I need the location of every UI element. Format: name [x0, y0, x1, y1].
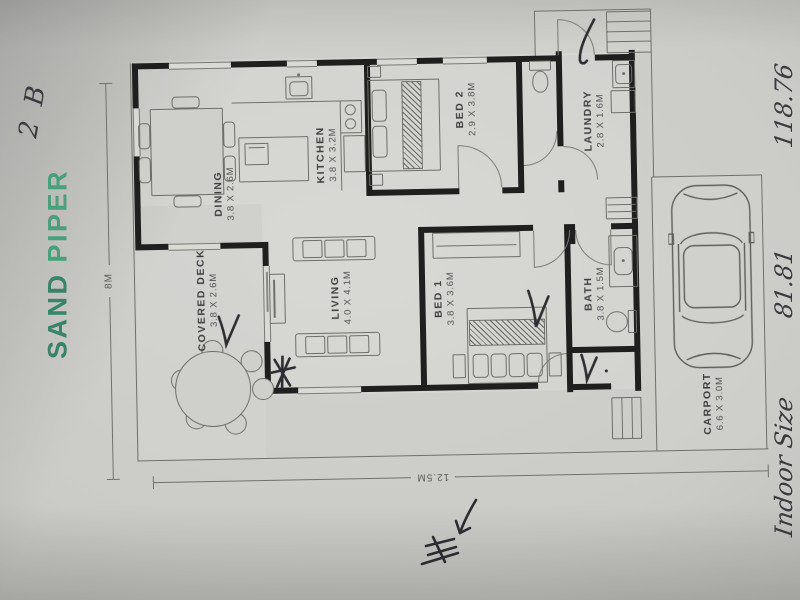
- pen-checkmark-bed1: [524, 286, 551, 332]
- bath-fixtures: [86, 0, 778, 9]
- tv-unit: [269, 274, 286, 324]
- doors: [86, 0, 778, 9]
- window: [298, 386, 361, 394]
- walls: [86, 0, 778, 9]
- window: [443, 57, 487, 65]
- plan-title-word1: SAND: [43, 273, 73, 360]
- washing-machine-space: [610, 90, 635, 113]
- deck-table: [86, 0, 778, 9]
- dimension-width: 12.5M: [86, 0, 778, 9]
- room-label-laundry: LAUNDRY2.8 X 1.6M: [581, 90, 606, 152]
- bath-toilet: [628, 310, 637, 333]
- fridge: [343, 135, 366, 172]
- living-furniture: [86, 0, 778, 9]
- plan-title-word2: PIPER: [43, 169, 73, 263]
- bed2-bed: [86, 0, 778, 9]
- room-label-living: LIVING4.0 X 4.1M: [329, 270, 354, 324]
- room-label-bath: BATH3.8 X 1.5M: [582, 266, 607, 320]
- wc-toilet: [86, 0, 778, 9]
- plan-title: SAND PIPER: [43, 169, 74, 359]
- front-steps: [611, 397, 642, 440]
- window: [377, 58, 417, 66]
- car-top-view: [667, 181, 757, 373]
- entry-porch: [86, 0, 778, 9]
- north-arrow-sketch: [416, 494, 492, 582]
- width-dimension-label: 12.5M: [416, 471, 449, 483]
- windows: [86, 0, 778, 9]
- window: [169, 62, 231, 70]
- laundry-fixtures: [86, 0, 778, 9]
- room-label-kitchen: KITCHEN3.8 X 3.2M: [314, 126, 339, 184]
- kitchen-fixtures: [86, 0, 778, 9]
- dining-table: [86, 0, 778, 9]
- dimension-height: 8M: [86, 0, 778, 9]
- room-label-bed1: BED 13.8 X 3.6M: [432, 271, 457, 325]
- room-label-bed2: BED 22.9 X 3.8M: [453, 82, 478, 136]
- height-dimension-label: 8M: [103, 273, 114, 289]
- floor-plan: DINING3.8 X 2.6M KITCHEN3.8 X 3.2M BED 2…: [86, 0, 787, 501]
- window: [287, 60, 317, 68]
- bed1-furniture: [86, 0, 778, 9]
- pen-checkmark-entry: [577, 352, 600, 386]
- pen-checkmark-porch: [572, 17, 601, 70]
- entry-dot: [605, 369, 608, 372]
- room-label-carport: CARPORT6.6 X 3.0M: [701, 372, 726, 435]
- room-label-dining: DINING3.8 X 2.6M: [212, 167, 237, 221]
- handwritten-bedroom-code: 2 B: [13, 80, 52, 140]
- pen-checkmark-deck: [216, 310, 243, 354]
- pen-star-living: [268, 355, 297, 390]
- photographed-floorplan-page: { "brand": { "word1": "SAND", "word2": "…: [0, 0, 800, 600]
